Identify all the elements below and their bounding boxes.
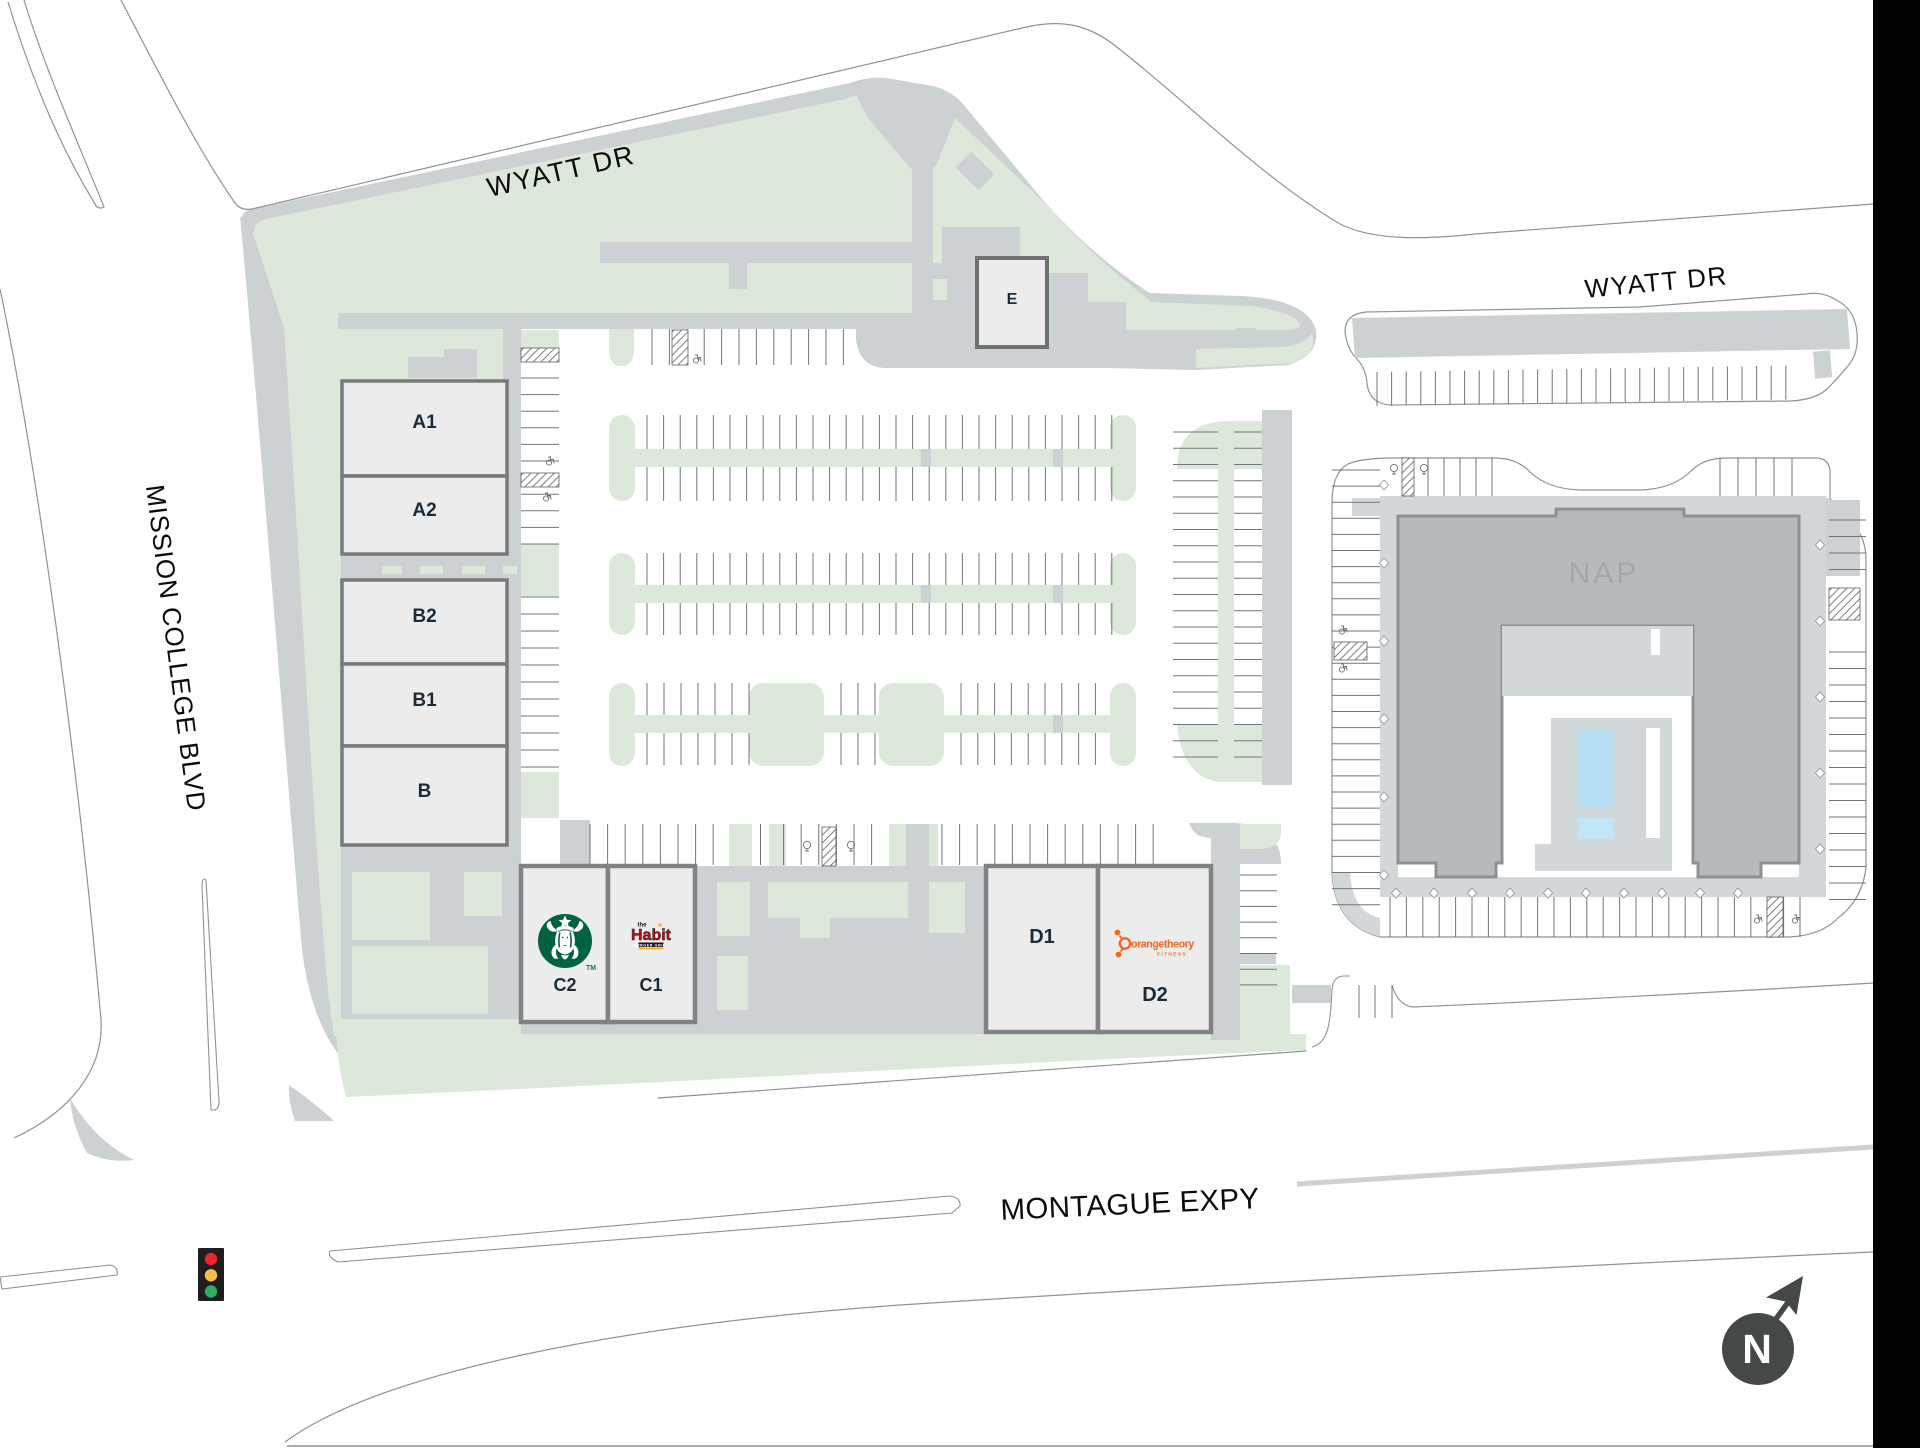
svg-text:TM: TM: [586, 965, 596, 972]
svg-text:orangetheory: orangetheory: [1131, 939, 1194, 951]
svg-text:C2: C2: [553, 975, 576, 995]
svg-text:A2: A2: [412, 500, 436, 521]
svg-text:N: N: [1742, 1326, 1772, 1372]
svg-text:C1: C1: [639, 975, 662, 995]
svg-text:NAP: NAP: [1569, 557, 1640, 590]
svg-text:D1: D1: [1029, 926, 1055, 948]
svg-text:BURGER GRILL: BURGER GRILL: [634, 943, 669, 947]
svg-text:A1: A1: [412, 412, 437, 433]
svg-text:B2: B2: [412, 606, 436, 627]
svg-text:B: B: [418, 781, 432, 802]
svg-text:FITNESS: FITNESS: [1157, 952, 1187, 958]
svg-text:D2: D2: [1142, 984, 1168, 1006]
svg-text:B1: B1: [412, 690, 437, 711]
svg-text:Habit: Habit: [631, 927, 672, 944]
svg-text:E: E: [1007, 291, 1018, 308]
